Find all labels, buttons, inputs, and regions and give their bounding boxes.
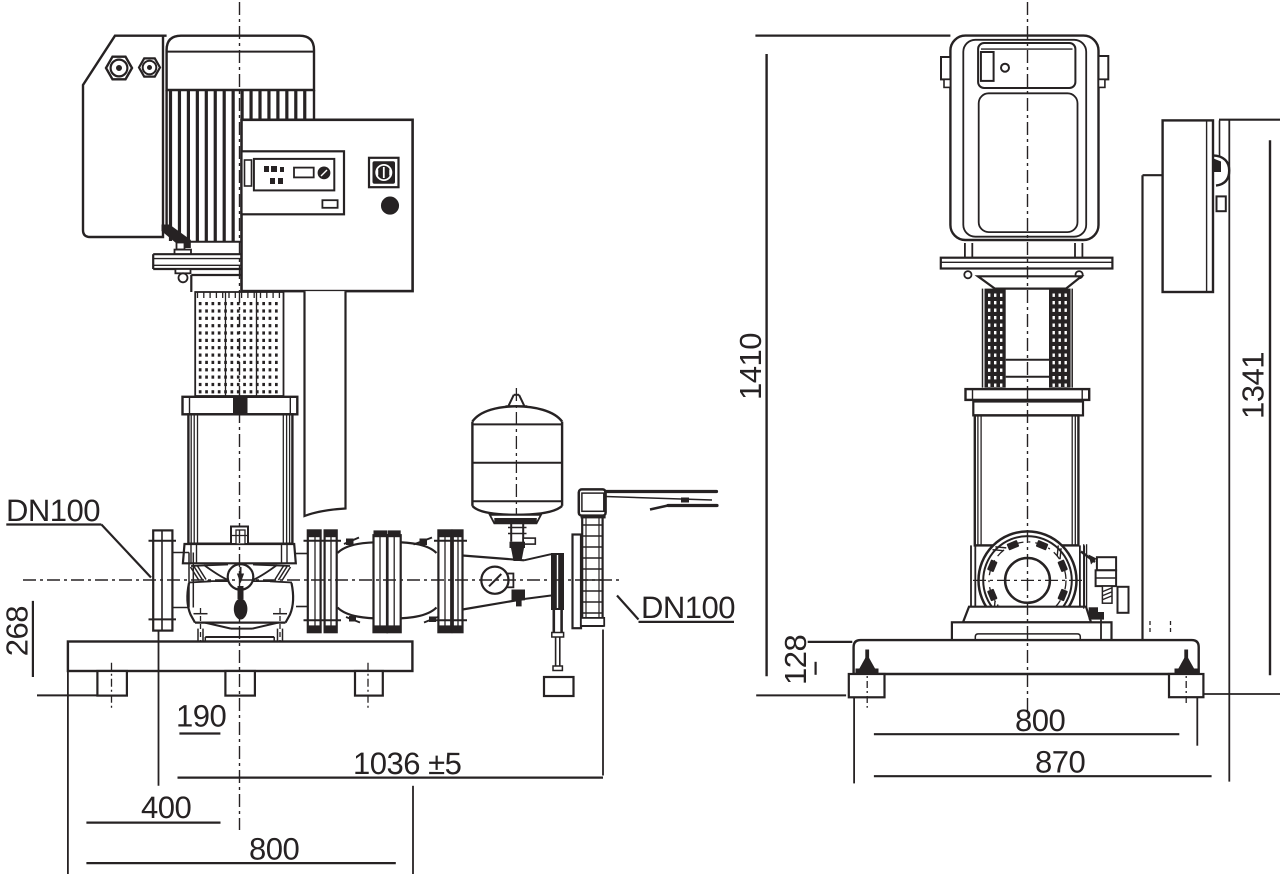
svg-text:870: 870 [1035, 745, 1086, 780]
svg-text:190: 190 [176, 699, 227, 734]
svg-text:268: 268 [0, 606, 35, 656]
svg-text:1341: 1341 [1236, 352, 1271, 419]
svg-text:DN100: DN100 [6, 493, 100, 528]
svg-text:1036 ±5: 1036 ±5 [353, 746, 461, 781]
svg-text:800: 800 [249, 832, 300, 867]
svg-text:DN100: DN100 [641, 590, 735, 625]
svg-text:800: 800 [1015, 703, 1066, 738]
svg-text:400: 400 [141, 790, 192, 825]
svg-text:1410: 1410 [733, 333, 768, 400]
